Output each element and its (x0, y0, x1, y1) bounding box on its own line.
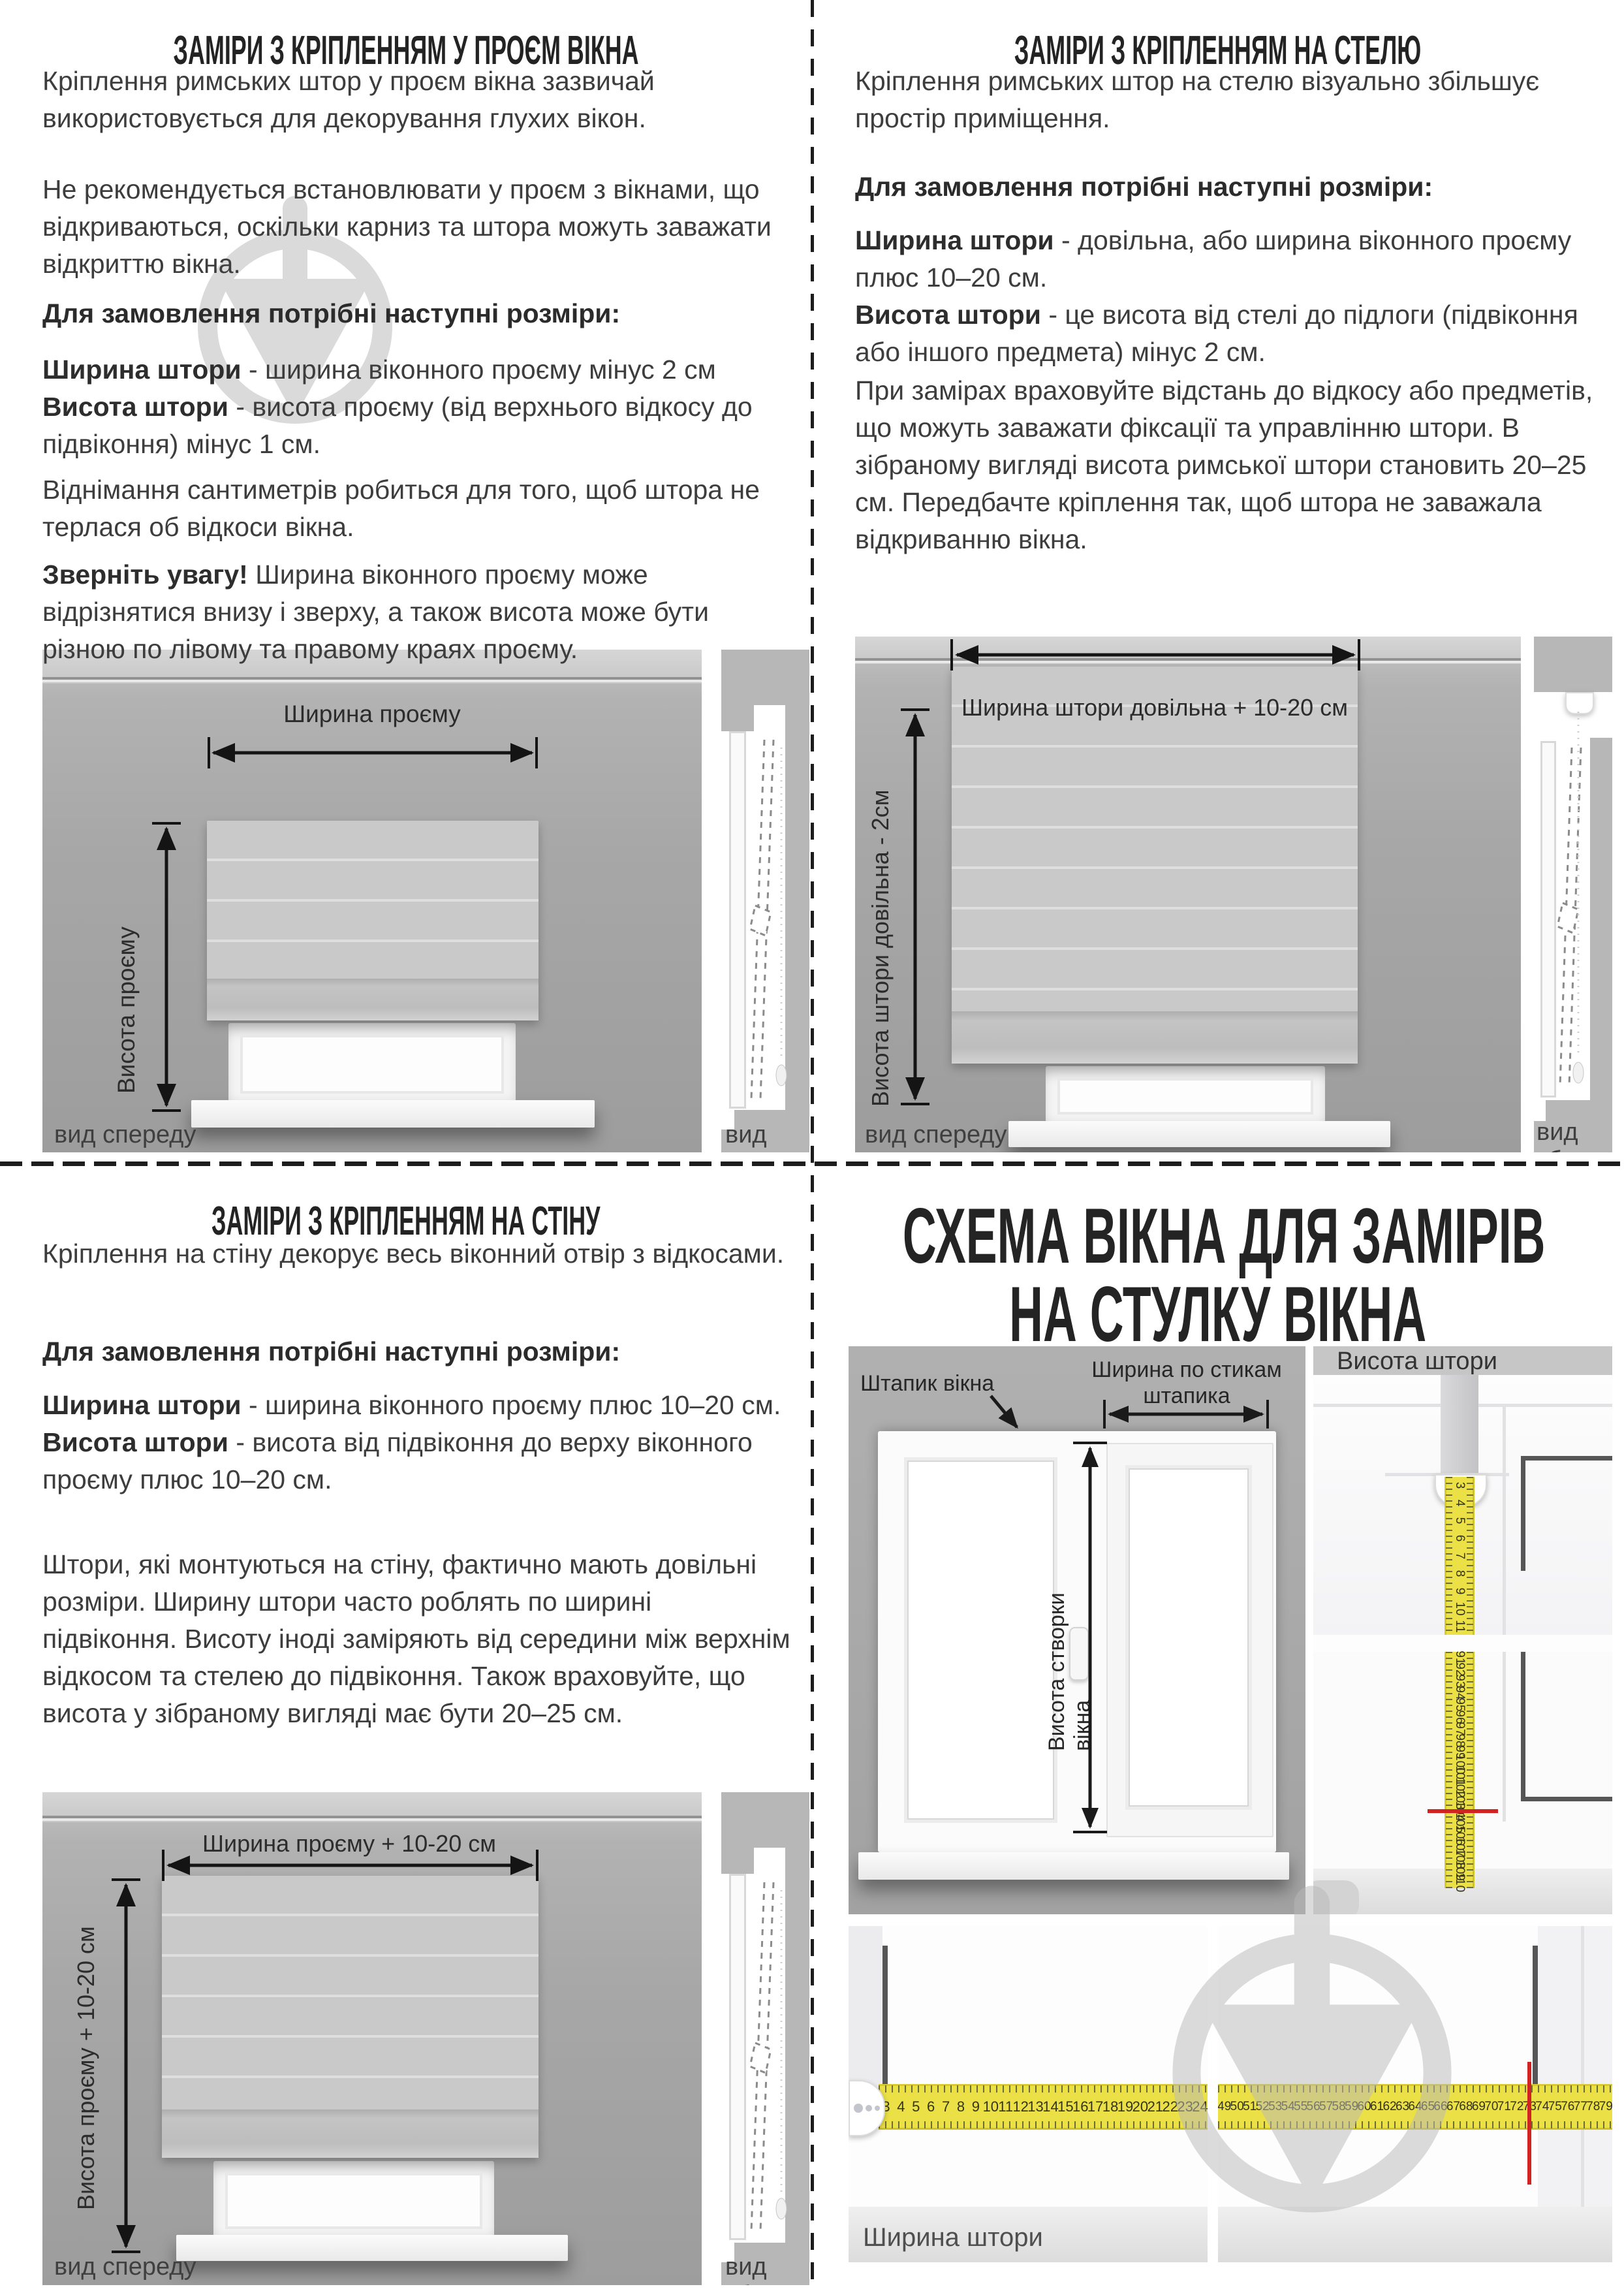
size-definitions: Ширина штори - ширина віконного проєму п… (42, 1387, 793, 1498)
side-view-diagram: вид збоку (721, 1792, 809, 2285)
brand-watermark (1172, 1876, 1452, 2213)
order-sizes-heading: Для замовлення потрібні наступні розміри… (42, 1333, 793, 1370)
order-sizes-heading: Для замовлення потрібні наступні розміри… (855, 168, 1606, 206)
note-paragraph: Зверніть увагу! Ширина віконного проєму … (42, 556, 793, 668)
front-view-diagram: Ширина штори довільна + 10-20 см Висота … (855, 637, 1521, 1152)
side-view-caption: вид збоку (725, 2253, 809, 2285)
paragraph: Віднімання сантиметрів робиться для того… (42, 471, 793, 546)
section-title-wall-mount: ЗАМІРИ З КРІПЛЕННЯМ НА СТІНУ (0, 1197, 812, 1232)
blind-mechanism-dashed (721, 1792, 809, 2285)
curtain-height-panel: Висота штори 34567891011 (1313, 1346, 1612, 1914)
side-view-caption: вид збоку (1537, 1118, 1612, 1152)
instruction-sheet: ЗАМІРИ З КРІПЛЕННЯМ У ПРОЄМ ВІКНА Кріпле… (0, 0, 1624, 2291)
front-view-diagram: Ширина проєму Висота проєму вид спереду (42, 650, 702, 1152)
measuring-tape-horizontal-left: 3456789101112131415161718192021222324 (879, 2084, 1208, 2130)
measuring-tape-vertical-top: 34567891011 (1444, 1477, 1475, 1635)
measuring-tape-vertical-bottom: 9192939495969798991001011021031041051061… (1444, 1652, 1475, 1888)
front-view-diagram: Ширина проєму + 10-20 см Висота проєму +… (42, 1792, 702, 2285)
term-width: Ширина штори (42, 1390, 242, 1420)
side-view-caption: вид збоку (725, 1121, 809, 1152)
paragraph: Штори, які монтуються на стіну, фактично… (42, 1546, 793, 1732)
blind-mechanism-dashed (1534, 637, 1612, 1152)
width-panel-label: Ширина штори (863, 2223, 1043, 2252)
term-width: Ширина штори (855, 225, 1054, 255)
curtain-width-photo-left: 3456789101112131415161718192021222324 Ши… (849, 1926, 1208, 2262)
paragraph: При замірах враховуйте відстань до відко… (855, 372, 1606, 558)
photo-top-of-sash: 34567891011 (1313, 1375, 1612, 1635)
dimension-arrows (855, 637, 1521, 1152)
dimension-arrows (42, 1792, 702, 2285)
term-height: Висота штори (42, 1427, 228, 1457)
red-measure-mark (1527, 2062, 1531, 2185)
window-measure-scheme: Штапик вікна Ширина по стикам штапика Ви… (849, 1346, 1305, 1914)
blind-mechanism-dashed (721, 650, 809, 1152)
paragraph: Кріплення римських штор у проєм вікна за… (42, 63, 793, 137)
paragraph: Не рекомендується встановлювати у проєм … (42, 171, 793, 283)
paragraph: Кріплення римських штор на стелю візуаль… (855, 63, 1606, 137)
photo-bottom-of-sash: 9192939495969798991001011021031041051061… (1313, 1652, 1612, 1914)
wall-pillar (1441, 1375, 1478, 1474)
section-title-inside-opening: ЗАМІРИ З КРІПЛЕННЯМ У ПРОЄМ ВІКНА (0, 26, 812, 61)
side-view-diagram: вид збоку (1534, 637, 1612, 1152)
vertical-dashed-divider (811, 0, 814, 2291)
side-view-diagram: вид збоку (721, 650, 809, 1152)
front-view-caption: вид спереду (54, 1121, 196, 1149)
note-term: Зверніть увагу! (42, 560, 248, 590)
order-sizes-heading: Для замовлення потрібні наступні розміри… (42, 295, 793, 332)
front-view-caption: вид спереду (54, 2253, 196, 2281)
term-height: Висота штори (42, 392, 228, 422)
scheme-arrows (849, 1346, 1305, 1914)
window-scheme-title-line1: СХЕМА ВІКНА ДЛЯ ЗАМІРІВ (812, 1192, 1624, 1261)
term-height: Висота штори (855, 300, 1041, 330)
front-view-caption: вид спереду (865, 1121, 1007, 1149)
window-scheme-title-line2: НА СТУЛКУ ВІКНА (812, 1271, 1624, 1339)
size-definitions: Ширина штори - ширина віконного проєму м… (42, 351, 793, 463)
section-title-ceiling-mount: ЗАМІРИ З КРІПЛЕННЯМ НА СТЕЛЮ (812, 26, 1624, 61)
horizontal-dashed-divider (0, 1161, 1624, 1166)
dimension-arrows (42, 650, 702, 1152)
size-definitions: Ширина штори - довільна, або ширина віко… (855, 222, 1606, 371)
term-width: Ширина штори (42, 355, 242, 385)
sill-front (1218, 2207, 1612, 2262)
red-measure-mark (1428, 1809, 1498, 1813)
